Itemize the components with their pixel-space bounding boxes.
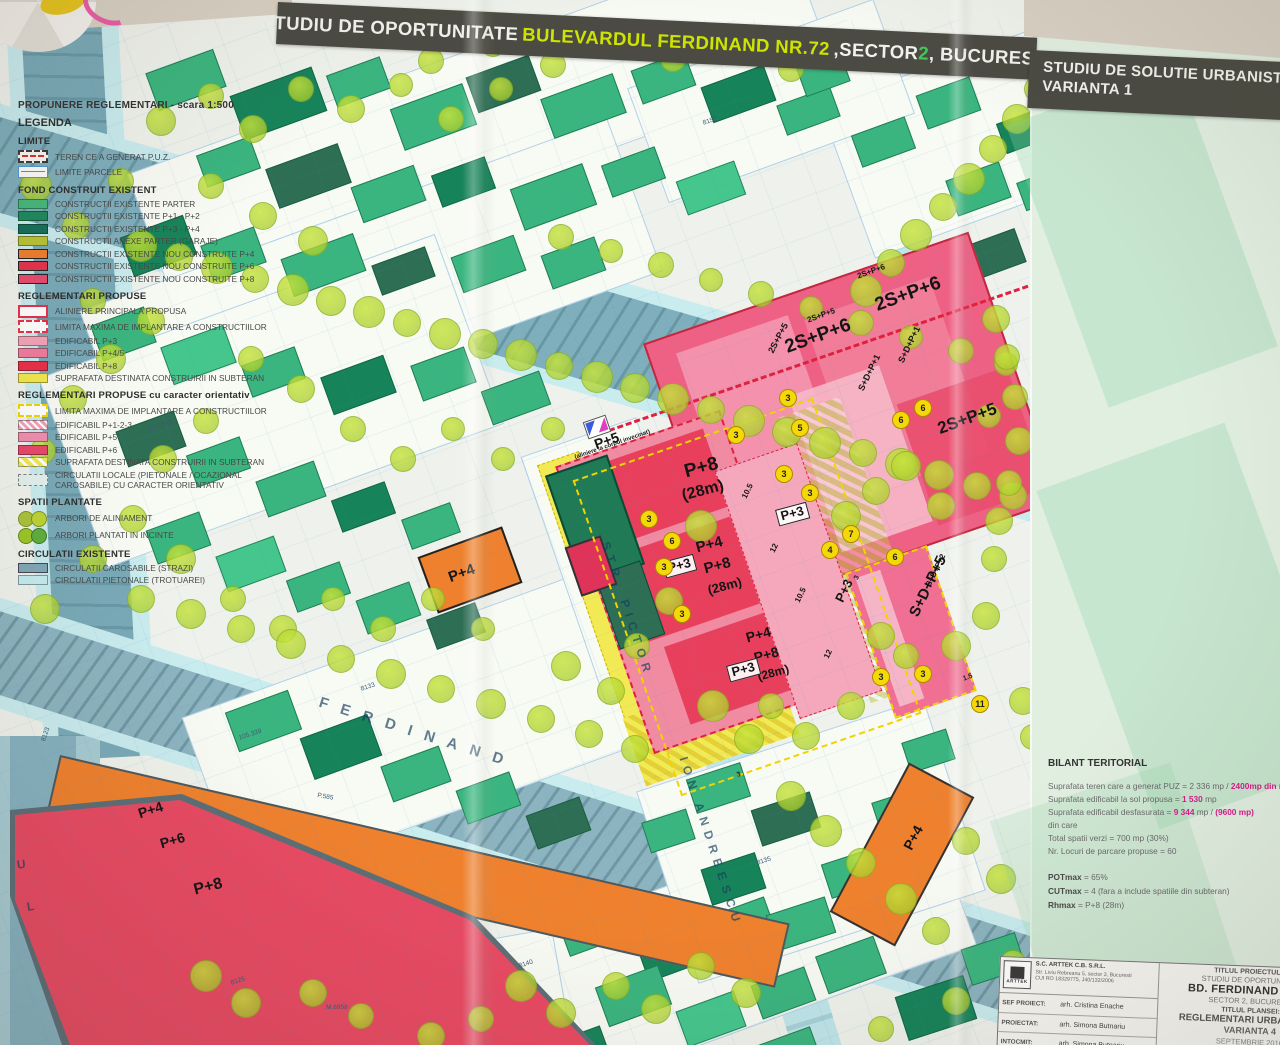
legend-item: CIRCULATII PIETONALE (TROTUAREI): [18, 575, 264, 585]
tree-icon: [1005, 427, 1033, 455]
number-badge: 3: [775, 465, 793, 483]
edificabil-p45-swatch-icon: [18, 348, 48, 358]
tree-icon: [929, 193, 957, 221]
tree-icon: [348, 1003, 374, 1029]
tree-icon: [985, 507, 1013, 535]
tree-icon: [952, 827, 980, 855]
bilant-text: din care: [1048, 820, 1078, 830]
tree-icon: [491, 447, 515, 471]
title-block-right: TITLUL PROIECTULUI: STUDIU DE OPORTUNITA…: [1156, 963, 1280, 1045]
limita-maxima-orientativ-swatch-icon: [18, 404, 48, 417]
anexe-garaje-swatch-icon: [18, 236, 48, 246]
project-title-3: SECTOR 2, BUCURESTI: [1208, 995, 1280, 1007]
tree-icon: [776, 781, 806, 811]
tree-icon: [316, 286, 346, 316]
bilant-heading: BILANT TERITORIAL: [1048, 758, 1280, 769]
bilant-text: mp: [1203, 794, 1217, 804]
number-badge: 3: [673, 605, 691, 623]
tree-icon: [30, 594, 60, 624]
legend-item: LIMITA MAXIMA DE IMPLANTARE A CONSTRUCTI…: [18, 320, 264, 333]
subteran-swatch-icon: [18, 373, 48, 383]
legend-item: CONSTRUCTII EXISTENTE P+3 - P+4: [18, 224, 264, 234]
tree-icon: [418, 48, 444, 74]
tree-icon: [546, 998, 576, 1028]
tree-icon: [979, 135, 1007, 163]
nou-p4-swatch-icon: [18, 249, 48, 259]
bilant-text: Rhmax: [1048, 900, 1076, 910]
tree-icon: [421, 587, 445, 611]
tree-icon: [687, 952, 715, 980]
legend-item: CONSTRUCTII EXISTENTE NOU CONSTRUITE P+8: [18, 274, 264, 284]
legend-section-heading: LIMITE: [18, 136, 264, 147]
tree-icon: [527, 705, 555, 733]
tree-icon: [699, 268, 723, 292]
tree-icon: [505, 970, 537, 1002]
legend-section-heading: CIRCULATII EXISTENTE: [18, 549, 264, 560]
urbanism-plan-photo: FERDINAND STR. PICTOR ION ANDREESCU P+5(…: [0, 0, 1280, 1045]
tree-icon: [602, 972, 630, 1000]
tree-icon: [321, 587, 345, 611]
nou-p8-swatch-icon: [18, 274, 48, 284]
map-label: U: [16, 857, 27, 872]
bilant-text: Nr. Locuri de parcare propuse = 60: [1048, 846, 1176, 856]
legend-item: ARBORI PLANTATI IN INCINTE: [18, 528, 264, 542]
tree-icon: [327, 645, 355, 673]
existente-p1-p2-swatch-icon: [18, 211, 48, 221]
map-sheet: FERDINAND STR. PICTOR ION ANDREESCU P+5(…: [0, 0, 1280, 1045]
tree-icon: [417, 1022, 445, 1045]
tree-icon: [758, 693, 784, 719]
tree-icon: [996, 470, 1022, 496]
tree-icon: [648, 252, 674, 278]
legend-item-label: ARBORI DE ALINIAMENT: [55, 513, 152, 523]
arttek-logo: ARTTEK: [1003, 960, 1032, 989]
legend-item: TEREN CE A GENERAT P.U.Z.: [18, 150, 264, 163]
number-badge: 6: [886, 548, 904, 566]
legend-item: EDIFICABIL P+4/5: [18, 348, 264, 358]
legend-item-label: SUPRAFATA DESTINATA CONSTRUIRII IN SUBTE…: [55, 373, 264, 383]
bilant-highlight-value: 9 344: [1174, 807, 1195, 817]
bilant-highlight-value: 2400mp din masuratori: [1231, 781, 1280, 791]
bilant-line: Nr. Locuri de parcare propuse = 60: [1048, 846, 1280, 856]
legend-item-label: EDIFICABIL P+5: [55, 432, 117, 442]
tree-icon: [489, 77, 513, 101]
legend-item: ALINIERE PRINCIPALA PROPUSA: [18, 305, 264, 318]
bilant-indicators: POTmax = 65%CUTmax = 4 (fara a include s…: [1048, 872, 1280, 910]
number-badge: 3: [655, 558, 673, 576]
legend-item-label: CONSTRUCTII EXISTENTE P+1 - P+2: [55, 211, 200, 221]
number-badge: 3: [872, 668, 890, 686]
bilant-lines: Suprafata teren care a generat PUZ = 2 3…: [1048, 781, 1280, 856]
legend-word: LEGENDA: [18, 117, 264, 129]
tree-icon: [441, 417, 465, 441]
tree-icon: [370, 616, 396, 642]
arbori-incinte-swatch-icon: [18, 528, 48, 542]
number-badge: 5: [791, 419, 809, 437]
bilant-text: Total spatii verzi = 700 mp (30%): [1048, 833, 1169, 843]
legend-item: CONSTRUCTII EXISTENTE NOU CONSTRUITE P+4: [18, 249, 264, 259]
tree-icon: [941, 631, 971, 661]
bilant-text: CUTmax: [1048, 886, 1082, 896]
bilant-text: mp /: [1194, 807, 1215, 817]
bilant-text: Suprafata teren care a generat PUZ = 2 3…: [1048, 781, 1231, 791]
bilant-text: Suprafata edificabil la sol propusa =: [1048, 794, 1182, 804]
bilant-text: Suprafata edificabil desfasurata =: [1048, 807, 1174, 817]
legend-item-label: EDIFICABIL P+8: [55, 361, 117, 371]
legend-item-label: ALINIERE PRINCIPALA PROPUSA: [55, 306, 186, 316]
bilant-highlight-value: (9600 mp): [1215, 807, 1254, 817]
existente-p3-p4-swatch-icon: [18, 224, 48, 234]
legend-item-label: SUPRAFATA DESTINATA CONSTRUIRII IN SUBTE…: [55, 457, 264, 467]
legend-item: EDIFICABIL P+8: [18, 361, 264, 371]
aliniere-swatch-icon: [18, 305, 48, 318]
nou-p6-swatch-icon: [18, 261, 48, 271]
tree-icon: [429, 318, 461, 350]
bilant-text: = 65%: [1082, 872, 1108, 882]
arbori-aliniament-swatch-icon: [18, 511, 48, 525]
number-badge: 11: [971, 695, 989, 713]
tree-icon: [792, 722, 820, 750]
limita-maxima-swatch-icon: [18, 320, 48, 333]
tree-icon: [220, 586, 246, 612]
tree-icon: [389, 73, 413, 97]
tree-icon: [972, 602, 1000, 630]
map-label: P+8: [192, 875, 224, 899]
tree-icon: [942, 987, 970, 1015]
legend-item: EDIFICABIL P+1-2-3: [18, 420, 264, 430]
number-badge: 3: [914, 665, 932, 683]
tree-icon: [891, 451, 921, 481]
title-sector-label: SECTOR: [839, 39, 919, 65]
tree-icon: [867, 622, 895, 650]
pietonale-swatch-icon: [18, 575, 48, 585]
tree-icon: [471, 617, 495, 641]
tree-icon: [390, 446, 416, 472]
number-badge: 7: [842, 525, 860, 543]
bilant-line: Rhmax = P+8 (28m): [1048, 900, 1280, 910]
legend-title: PROPUNERE REGLEMENTARI - scara 1:500: [18, 100, 264, 111]
tree-icon: [641, 994, 671, 1024]
tree-icon: [657, 383, 689, 415]
tree-icon: [981, 546, 1007, 572]
edificabil-p3-swatch-icon: [18, 336, 48, 346]
tree-icon: [505, 339, 537, 371]
number-badge: 6: [663, 532, 681, 550]
title-prefix: STUDIU DE OPORTUNITATE: [261, 11, 519, 45]
tree-icon: [927, 492, 955, 520]
legend-item: CONSTRUCTII EXISTENTE P+1 - P+2: [18, 211, 264, 221]
legend-item-label: CIRCULATII LOCALE (PIETONALE / OCAZIONAL…: [55, 470, 264, 491]
legend-item: CONSTRUCTII ANEXE PARTER (GARAJE): [18, 236, 264, 246]
tree-icon: [548, 224, 574, 250]
legend-item: EDIFICABIL P+3: [18, 336, 264, 346]
tree-icon: [924, 460, 954, 490]
existing-building-block: [481, 370, 552, 425]
legend-item: SUPRAFATA DESTINATA CONSTRUIRII IN SUBTE…: [18, 373, 264, 383]
tree-icon: [376, 659, 406, 689]
bilant-line: POTmax = 65%: [1048, 872, 1280, 882]
legend-item: CIRCULATII CAROSABILE (STRAZI): [18, 563, 264, 573]
tree-icon: [748, 281, 774, 307]
tree-icon: [599, 239, 623, 263]
number-badge: 6: [914, 399, 932, 417]
legend-section-heading: REGLEMENTARI PROPUSE: [18, 291, 264, 302]
tree-icon: [176, 599, 206, 629]
tree-icon: [893, 643, 919, 669]
bilant-teritorial: BILANT TERITORIAL Suprafata teren care a…: [1048, 758, 1280, 914]
bilant-line: CUTmax = 4 (fara a include spatiile din …: [1048, 886, 1280, 896]
bilant-text: = 4 (fara a include spatiile din subtera…: [1082, 886, 1230, 896]
existing-building-block: [331, 481, 396, 532]
tree-icon: [545, 352, 573, 380]
edificabil-p8-swatch-icon: [18, 361, 48, 371]
legend-item-label: TEREN CE A GENERAT P.U.Z.: [55, 152, 170, 162]
carosabile-swatch-icon: [18, 563, 48, 573]
tree-icon: [541, 417, 565, 441]
tree-icon: [227, 615, 255, 643]
legend-item-label: CIRCULATII PIETONALE (TROTUAREI): [55, 575, 205, 585]
tree-icon: [994, 344, 1020, 370]
edificabil-p6-swatch-icon: [18, 445, 48, 455]
legend-item-label: EDIFICABIL P+6: [55, 445, 117, 455]
legend-item-label: CONSTRUCTII EXISTENTE NOU CONSTRUITE P+8: [55, 274, 254, 284]
legend-item-label: LIMITE PARCELE: [55, 167, 122, 177]
tree-icon: [846, 848, 876, 878]
tree-icon: [127, 585, 155, 613]
bilant-line: din care: [1048, 820, 1280, 830]
edificabil-p123-swatch-icon: [18, 420, 48, 430]
legend-item-label: CONSTRUCTII ANEXE PARTER (GARAJE): [55, 236, 218, 246]
tree-icon: [620, 373, 650, 403]
tree-icon: [337, 95, 365, 123]
tree-icon: [276, 629, 306, 659]
subteran-orientativ-swatch-icon: [18, 457, 48, 467]
tree-icon: [438, 106, 464, 132]
number-badge: 6: [892, 411, 910, 429]
tree-icon: [963, 472, 991, 500]
bilant-line: Total spatii verzi = 700 mp (30%): [1048, 833, 1280, 843]
legend-item-label: CONSTRUCTII EXISTENTE NOU CONSTRUITE P+6: [55, 261, 254, 271]
number-badge: 3: [727, 426, 745, 444]
legend-item: EDIFICABIL P+6: [18, 445, 264, 455]
legend-item-label: EDIFICABIL P+1-2-3: [55, 420, 132, 430]
tree-icon: [581, 361, 613, 393]
number-badge: 4: [821, 541, 839, 559]
tree-icon: [231, 988, 261, 1018]
tree-icon: [885, 883, 917, 915]
legend-item: LIMITA MAXIMA DE IMPLANTARE A CONSTRUCTI…: [18, 404, 264, 417]
tree-icon: [190, 960, 222, 992]
legend-item: CONSTRUCTII EXISTENTE PARTER: [18, 199, 264, 209]
legend-section-heading: FOND CONSTRUIT EXISTENT: [18, 185, 264, 196]
legend-item: ARBORI DE ALINIAMENT: [18, 511, 264, 525]
legend-item: CIRCULATII LOCALE (PIETONALE / OCAZIONAL…: [18, 470, 264, 491]
legend-section-heading: REGLEMENTARI PROPUSE cu caracter orienta…: [18, 390, 264, 401]
bilant-line: Suprafata teren care a generat PUZ = 2 3…: [1048, 781, 1280, 791]
teren-puz-swatch-icon: [18, 150, 48, 163]
tree-icon: [299, 979, 327, 1007]
legend-item: LIMITE PARCELE: [18, 166, 264, 178]
bilant-line: Suprafata edificabil desfasurata = 9 344…: [1048, 807, 1280, 817]
tree-icon: [922, 917, 950, 945]
tree-icon: [809, 427, 841, 459]
legend-item: EDIFICABIL P+5: [18, 432, 264, 442]
plate-variant: VARIANTA 4: [1223, 1025, 1276, 1037]
title-block: ARTTEK S.C. ARTTEK C.B. S.R.L. Str. Livi…: [996, 956, 1280, 1045]
tree-icon: [476, 689, 506, 719]
legend-sections: LIMITETEREN CE A GENERAT P.U.Z.LIMITE PA…: [18, 136, 264, 585]
tree-icon: [982, 305, 1010, 333]
tree-icon: [697, 396, 725, 424]
existing-building-block: [401, 502, 461, 550]
legend-item-label: LIMITA MAXIMA DE IMPLANTARE A CONSTRUCTI…: [55, 322, 267, 332]
bilant-text: POTmax: [1048, 872, 1082, 882]
tree-icon: [287, 375, 315, 403]
tree-icon: [353, 296, 385, 328]
legend-item-label: EDIFICABIL P+4/5: [55, 348, 124, 358]
tree-icon: [340, 416, 366, 442]
tree-icon: [427, 675, 455, 703]
tree-icon: [575, 720, 603, 748]
parcel-annotation: M.6958: [326, 1004, 348, 1011]
tree-icon: [953, 163, 985, 195]
number-badge: 3: [801, 484, 819, 502]
legend-item-label: ARBORI PLANTATI IN INCINTE: [55, 530, 174, 540]
number-badge: 3: [779, 389, 797, 407]
bilant-line: Suprafata edificabil la sol propusa = 1 …: [1048, 794, 1280, 804]
tree-icon: [468, 329, 498, 359]
tree-icon: [298, 226, 328, 256]
tree-icon: [900, 219, 932, 251]
legend-item-label: CONSTRUCTII EXISTENTE PARTER: [55, 199, 195, 209]
number-badge: 3: [640, 510, 658, 528]
tree-icon: [393, 309, 421, 337]
tree-icon: [837, 692, 865, 720]
tree-icon: [948, 338, 974, 364]
legend-item: CONSTRUCTII EXISTENTE NOU CONSTRUITE P+6: [18, 261, 264, 271]
legend-content: PROPUNERE REGLEMENTARI - scara 1:500 LEG…: [18, 100, 264, 588]
title-block-left: ARTTEK S.C. ARTTEK C.B. S.R.L. Str. Livi…: [997, 957, 1159, 1045]
legend-item-label: CIRCULATII CAROSABILE (STRAZI): [55, 563, 193, 573]
legend-item-label: CONSTRUCTII EXISTENTE NOU CONSTRUITE P+4: [55, 249, 254, 259]
arttek-logo-glyph: [1010, 966, 1024, 979]
legend-item: SUPRAFATA DESTINATA CONSTRUIRII IN SUBTE…: [18, 457, 264, 467]
firm-info: ARTTEK S.C. ARTTEK C.B. S.R.L. Str. Livi…: [1000, 957, 1159, 999]
tree-icon: [849, 439, 877, 467]
existente-parter-swatch-icon: [18, 199, 48, 209]
plate-date: SEPTEMBRIE 2016: [1216, 1036, 1280, 1045]
bilant-text: = P+8 (28m): [1076, 900, 1124, 910]
tree-icon: [810, 815, 842, 847]
legend-item-label: EDIFICABIL P+3: [55, 336, 117, 346]
legend-section-heading: SPATII PLANTATE: [18, 497, 264, 508]
tree-icon: [597, 677, 625, 705]
tree-icon: [731, 978, 761, 1008]
tree-icon: [868, 1016, 894, 1042]
title-highlight: BULEVARDUL FERDINAND NR.72: [518, 23, 834, 60]
tree-icon: [734, 724, 764, 754]
limite-parcele-swatch-icon: [18, 166, 48, 178]
bilant-highlight-value: 1 530: [1182, 794, 1203, 804]
tree-icon: [551, 651, 581, 681]
tree-icon: [468, 1006, 494, 1032]
tree-icon: [862, 477, 890, 505]
tree-icon: [697, 690, 729, 722]
tree-icon: [1002, 384, 1028, 410]
legend-item-label: LIMITA MAXIMA DE IMPLANTARE A CONSTRUCTI…: [55, 406, 267, 416]
tree-icon: [277, 274, 309, 306]
legend-item-label: CONSTRUCTII EXISTENTE P+3 - P+4: [55, 224, 200, 234]
parcel-annotation: 8125: [230, 976, 246, 987]
circulatii-locale-swatch-icon: [18, 474, 48, 486]
edificabil-p5-swatch-icon: [18, 432, 48, 442]
tree-icon: [288, 76, 314, 102]
tree-icon: [621, 735, 649, 763]
